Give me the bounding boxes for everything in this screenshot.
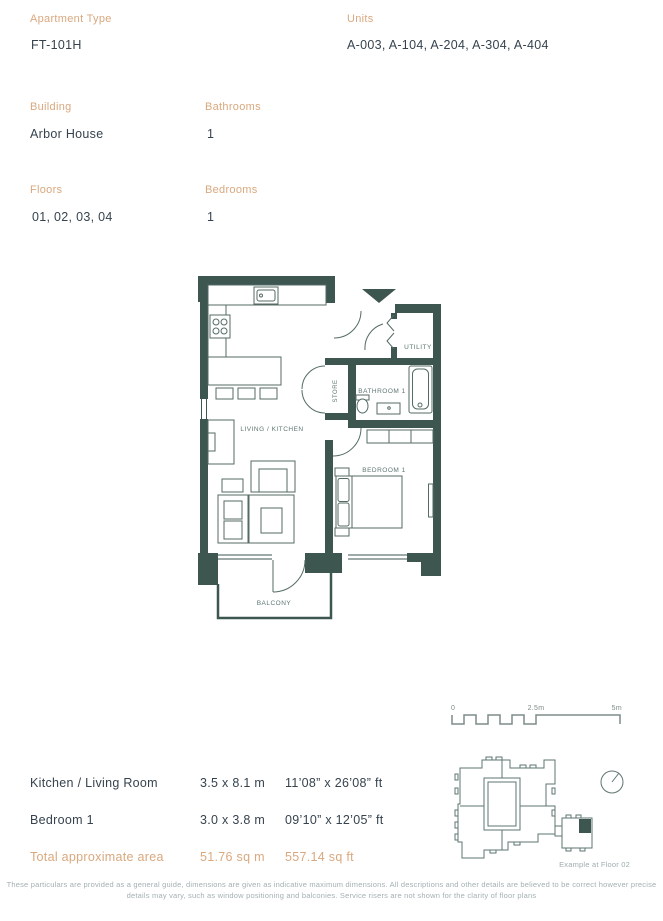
- room-name: Bedroom 1: [30, 813, 94, 827]
- apartment-type-value: FT-101H: [31, 38, 82, 52]
- scale-bar-line: [452, 715, 620, 724]
- scale-bar: 0 2.5m 5m: [450, 702, 628, 728]
- disclaimer-text: These particulars are provided as a gene…: [0, 879, 663, 901]
- bedrooms-value: 1: [207, 210, 214, 224]
- scale-end-label: 5m: [612, 705, 622, 712]
- floors-label: Floors: [30, 184, 62, 196]
- side-table: [222, 479, 243, 492]
- utility-bifold-door: [387, 333, 394, 349]
- room-imperial: 09’10” x 12’05” ft: [285, 813, 384, 827]
- living-room-furniture: [208, 420, 295, 543]
- room-metric: 3.0 x 3.8 m: [200, 813, 265, 827]
- bedroom-furniture: [335, 430, 433, 536]
- bathroom-label: BATHROOM 1: [358, 388, 406, 395]
- hall-door-arc: [365, 324, 383, 350]
- kitchen-peninsula: [208, 357, 281, 385]
- stool: [260, 388, 277, 399]
- store-door-arc: [302, 390, 325, 413]
- entry-door-arc: [334, 311, 361, 338]
- entrance-arrow-icon: [362, 289, 396, 303]
- pillow: [338, 479, 349, 502]
- bedroom-door-arc: [333, 428, 361, 456]
- room-metric: 3.5 x 8.1 m: [200, 776, 265, 790]
- stool: [238, 388, 255, 399]
- room-imperial: 11’08” x 26’08” ft: [285, 776, 383, 790]
- balcony-label: BALCONY: [257, 600, 292, 607]
- utility-label: UTILITY: [404, 344, 432, 351]
- balcony-outline: [218, 572, 331, 618]
- site-plan: [450, 748, 640, 870]
- total-area-imperial: 557.14 sq ft: [285, 850, 354, 864]
- pillow: [338, 503, 349, 526]
- apartment-type-label: Apartment Type: [30, 13, 112, 25]
- store-door-arc: [302, 366, 325, 389]
- coffee-table: [261, 508, 282, 533]
- store-label: STORE: [333, 379, 339, 402]
- building-value: Arbor House: [30, 127, 103, 141]
- site-plan-caption: Example at Floor 02: [450, 860, 630, 869]
- balcony-door-arc: [273, 560, 305, 592]
- bedside-table: [335, 528, 349, 536]
- courtyard: [484, 778, 520, 830]
- kitchen-fixtures: [208, 285, 326, 399]
- scale-mid-label: 2.5m: [528, 705, 545, 712]
- building-outline: [458, 760, 555, 858]
- bedside-table: [335, 468, 349, 476]
- bathrooms-label: Bathrooms: [205, 101, 261, 113]
- living-kitchen-label: LIVING / KITCHEN: [240, 426, 303, 433]
- bedroom-label: BEDROOM 1: [362, 467, 406, 474]
- room-name: Kitchen / Living Room: [30, 776, 158, 790]
- wardrobe: [367, 430, 433, 443]
- doors: [273, 311, 394, 592]
- scale-start-label: 0: [451, 705, 455, 712]
- bathrooms-value: 1: [207, 127, 214, 141]
- units-label: Units: [347, 13, 374, 25]
- building-label: Building: [30, 101, 72, 113]
- stool: [216, 388, 233, 399]
- total-area-metric: 51.76 sq m: [200, 850, 265, 864]
- units-value: A-003, A-104, A-204, A-304, A-404: [347, 38, 549, 52]
- floor-plan: LIVING / KITCHEN STORE BATHROOM 1 UTILIT…: [185, 262, 455, 632]
- total-area-label: Total approximate area: [30, 850, 164, 864]
- radiator: [429, 484, 434, 517]
- hob: [210, 315, 230, 338]
- bedrooms-label: Bedrooms: [205, 184, 258, 196]
- apartment-location-marker: [579, 819, 591, 833]
- floors-value: 01, 02, 03, 04: [32, 210, 113, 224]
